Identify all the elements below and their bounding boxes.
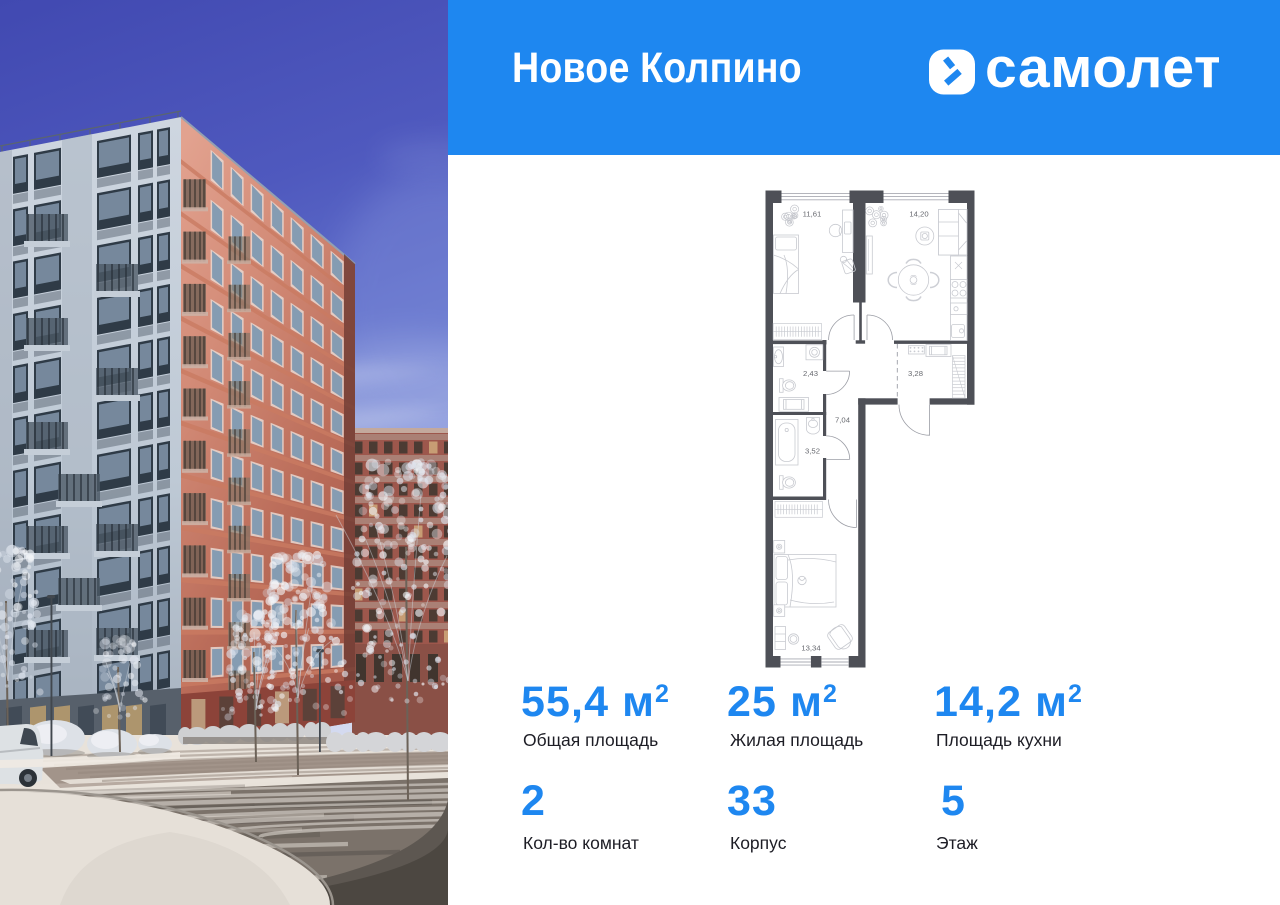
svg-text:самолет: самолет xyxy=(985,49,1219,95)
svg-text:11,61: 11,61 xyxy=(803,210,822,219)
svg-text:2,43: 2,43 xyxy=(803,369,818,378)
svg-text:7,04: 7,04 xyxy=(835,416,851,425)
svg-text:14,20: 14,20 xyxy=(909,210,928,219)
svg-text:3,52: 3,52 xyxy=(805,447,820,456)
svg-text:3,28: 3,28 xyxy=(908,369,923,378)
svg-text:13,34: 13,34 xyxy=(801,644,821,653)
